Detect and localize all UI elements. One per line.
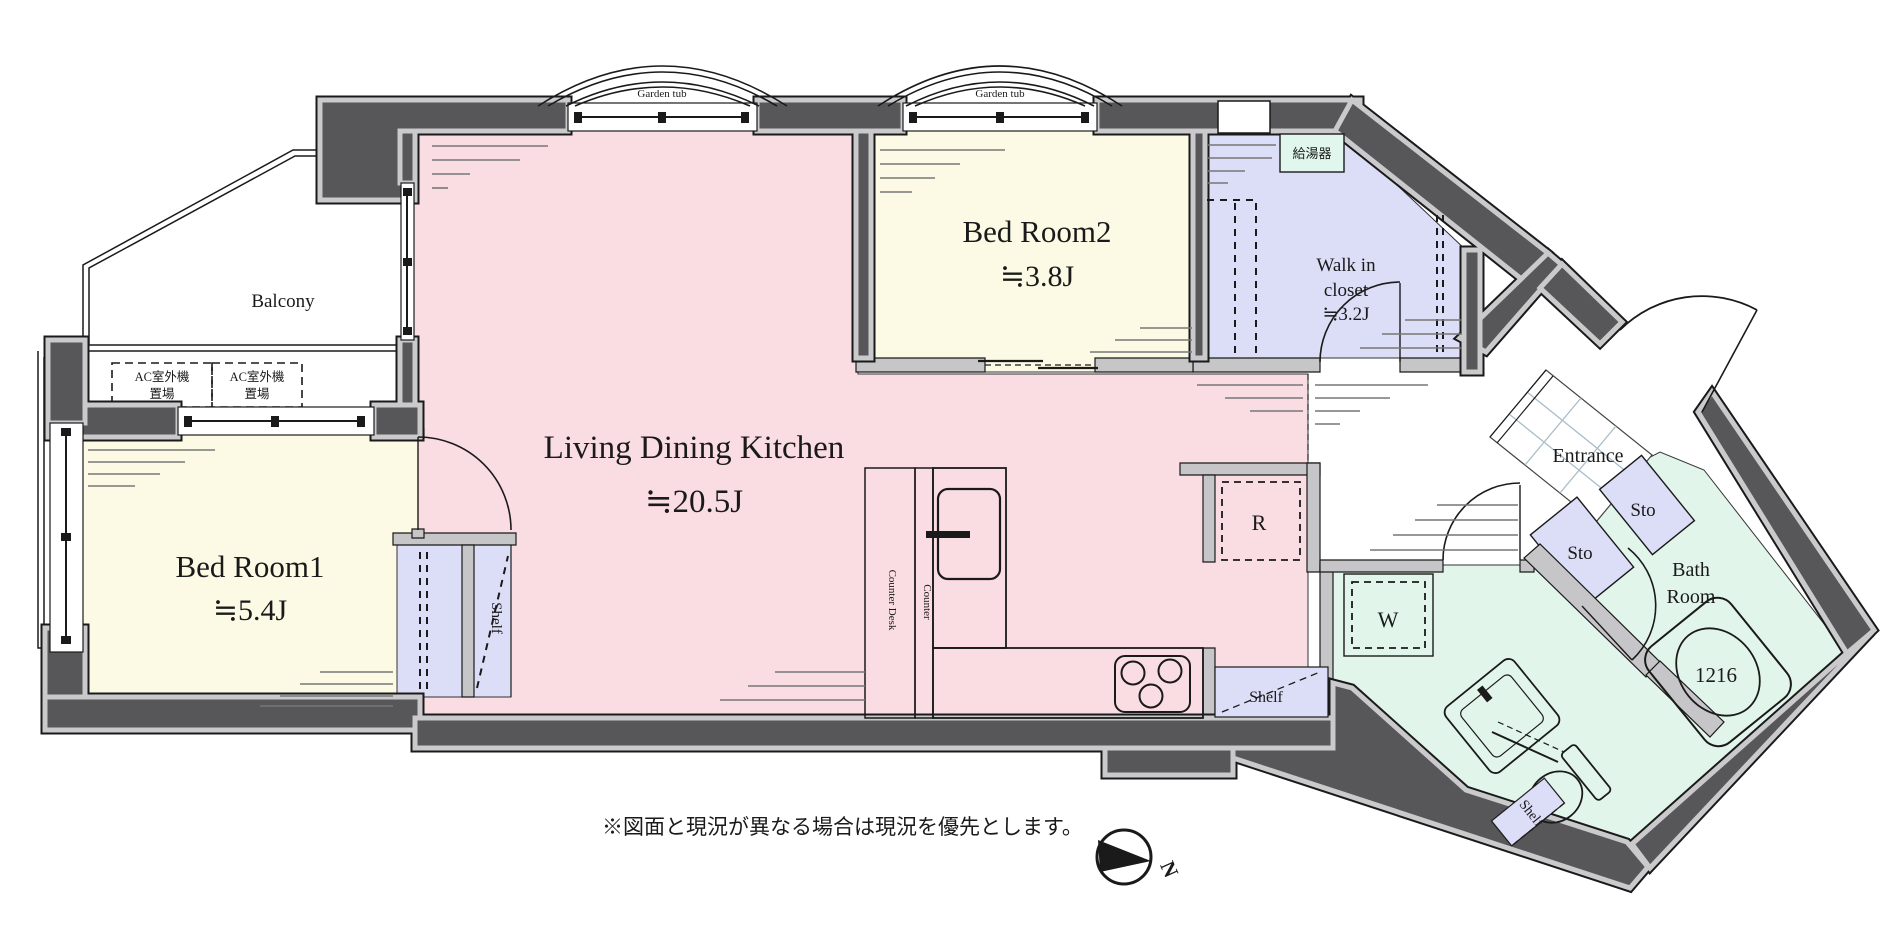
- compass-icon: N: [1097, 830, 1183, 884]
- label-sto-1: Sto: [1630, 500, 1655, 521]
- door-washroom: [1443, 483, 1520, 560]
- label-ldk-size: ≒20.5J: [645, 484, 743, 520]
- label-garden-tub-1: Garden tub: [637, 88, 687, 100]
- label-sto-2: Sto: [1567, 543, 1592, 564]
- label-ac-pad-2-line1: AC室外機: [230, 369, 285, 384]
- label-water-heater: 給湯器: [1292, 146, 1331, 161]
- label-bedroom1-size: ≒5.4J: [213, 594, 288, 627]
- pipe-space-box: [1218, 101, 1270, 133]
- label-counter: Counter: [921, 584, 933, 620]
- label-ac-pad-2-line2: 置場: [244, 387, 269, 401]
- label-counter-desk: Counter Desk: [886, 570, 898, 631]
- label-ac-pad-1-line1: AC室外機: [135, 369, 190, 384]
- window-bay1: [568, 103, 757, 131]
- label-bedroom1-name: Bed Room1: [176, 549, 325, 584]
- floorplan-page: Garden tub Garden tub Balcony AC室外機 置場 A…: [0, 0, 1902, 945]
- disclaimer-note: ※図面と現況が異なる場合は現況を優先とします。: [602, 815, 1083, 839]
- faucet-icon: [926, 531, 970, 538]
- label-wic-line2: closet: [1324, 280, 1369, 301]
- window-bedroom1-top: [178, 407, 374, 435]
- closet-bedroom1-floor: [397, 545, 462, 697]
- label-bathroom-line1: Bath: [1672, 559, 1710, 581]
- label-bathroom-line2: Room: [1667, 586, 1716, 608]
- window-bedroom1-left: [50, 423, 83, 652]
- label-kitchen-shelf: Shelf: [1249, 689, 1283, 706]
- door-entrance: [1620, 296, 1757, 412]
- label-ldk-name: Living Dining Kitchen: [544, 430, 845, 466]
- window-bay2: [903, 103, 1097, 131]
- label-refrigerator: R: [1252, 510, 1267, 535]
- compass-north-label: N: [1155, 857, 1183, 881]
- label-wic-size: ≒3.2J: [1322, 304, 1369, 325]
- label-wic-line1: Walk in: [1316, 255, 1376, 276]
- label-closet-shelf: Shelf: [488, 602, 504, 634]
- label-ac-pad-1-line2: 置場: [149, 387, 174, 401]
- label-entrance: Entrance: [1552, 445, 1623, 467]
- label-garden-tub-2: Garden tub: [975, 88, 1025, 100]
- window-ldk-balcony: [401, 183, 414, 340]
- label-bedroom2-size: ≒3.8J: [1000, 260, 1075, 293]
- floorplan-svg: Garden tub Garden tub Balcony AC室外機 置場 A…: [0, 0, 1902, 945]
- label-tub-size: 1216: [1695, 663, 1737, 687]
- label-balcony: Balcony: [251, 291, 315, 312]
- label-washing-machine: W: [1378, 607, 1399, 632]
- label-bedroom2-name: Bed Room2: [963, 214, 1112, 249]
